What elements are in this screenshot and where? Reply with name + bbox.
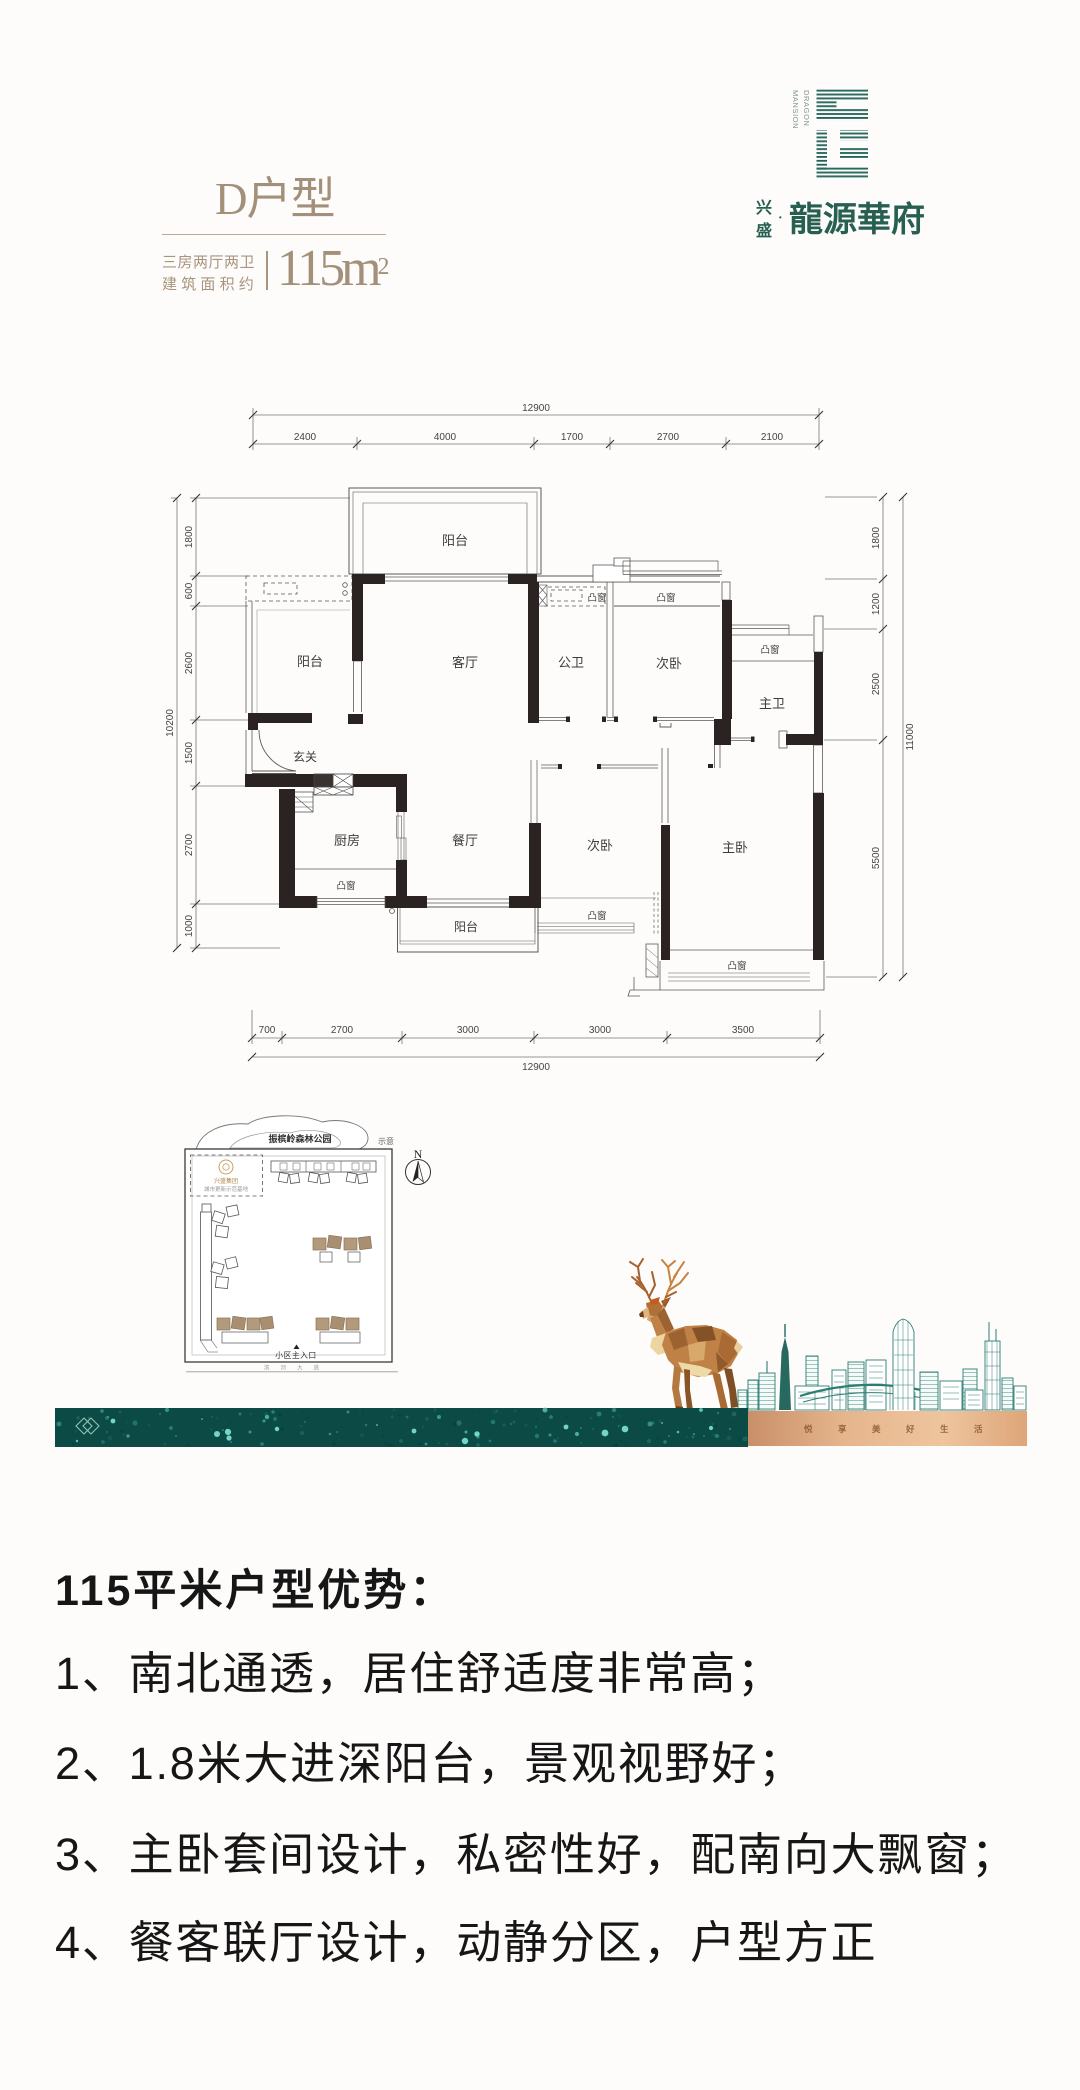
svg-text:3000: 3000 (589, 1025, 612, 1036)
svg-text:1000: 1000 (184, 914, 195, 937)
svg-text:600: 600 (184, 582, 195, 599)
svg-text:11000: 11000 (905, 723, 916, 751)
svg-text:阳台: 阳台 (442, 533, 468, 548)
svg-text:次卧: 次卧 (656, 656, 682, 671)
svg-text:盛: 盛 (756, 221, 772, 240)
svg-text:MANSION: MANSION (791, 90, 800, 129)
svg-text:N: N (414, 1147, 423, 1161)
svg-text:兴盛集团: 兴盛集团 (214, 1177, 238, 1185)
svg-text:1800: 1800 (871, 526, 882, 549)
svg-text:1200: 1200 (871, 592, 882, 615)
svg-text:3500: 3500 (732, 1025, 755, 1036)
svg-text:4000: 4000 (434, 432, 457, 443)
svg-text:悦享美好生活: 悦享美好生活 (804, 1424, 1008, 1434)
svg-text:12900: 12900 (522, 403, 550, 414)
svg-text:城市更新示范基地: 城市更新示范基地 (204, 1185, 249, 1193)
svg-text:滨河大道: 滨河大道 (264, 1364, 330, 1372)
svg-text:阳台: 阳台 (297, 654, 323, 669)
svg-text:龍源華府: 龍源華府 (789, 200, 925, 239)
svg-text:700: 700 (259, 1025, 276, 1036)
svg-text:2400: 2400 (294, 432, 317, 443)
svg-text:2600: 2600 (184, 651, 195, 674)
svg-text:凸窗: 凸窗 (760, 644, 779, 656)
svg-text:2100: 2100 (761, 432, 784, 443)
svg-text:玄关: 玄关 (293, 749, 317, 764)
svg-text:餐厅: 餐厅 (452, 833, 478, 848)
svg-text:1500: 1500 (184, 741, 195, 764)
svg-text:示意: 示意 (378, 1136, 394, 1146)
svg-text:凸窗: 凸窗 (727, 960, 746, 972)
svg-text:公卫: 公卫 (558, 655, 584, 670)
svg-text:客厅: 客厅 (452, 655, 478, 670)
svg-text:凸窗: 凸窗 (336, 880, 355, 892)
svg-text:3000: 3000 (457, 1025, 480, 1036)
svg-text:2700: 2700 (331, 1025, 354, 1036)
svg-text:凸窗: 凸窗 (656, 592, 675, 604)
svg-text:阳台: 阳台 (454, 919, 478, 934)
svg-text:1700: 1700 (561, 432, 584, 443)
svg-text:2700: 2700 (657, 432, 680, 443)
svg-text:凸窗: 凸窗 (587, 592, 606, 604)
svg-text:DRAGON: DRAGON (802, 90, 811, 127)
svg-text:厨房: 厨房 (334, 833, 360, 848)
svg-text:兴: 兴 (756, 199, 772, 217)
svg-text:凸窗: 凸窗 (587, 910, 606, 922)
svg-text:主卫: 主卫 (759, 696, 785, 711)
svg-text:振槟岭森林公园: 振槟岭森林公园 (268, 1133, 331, 1144)
svg-text:1800: 1800 (184, 525, 195, 548)
svg-text:5500: 5500 (871, 846, 882, 869)
svg-text:小区主入口: 小区主入口 (275, 1350, 316, 1360)
svg-text:10200: 10200 (165, 709, 176, 737)
svg-text:次卧: 次卧 (587, 838, 613, 853)
svg-text:2700: 2700 (184, 833, 195, 856)
svg-text:·: · (778, 211, 783, 226)
svg-text:12900: 12900 (522, 1062, 550, 1073)
svg-text:主卧: 主卧 (722, 840, 748, 855)
svg-text:2500: 2500 (871, 672, 882, 695)
